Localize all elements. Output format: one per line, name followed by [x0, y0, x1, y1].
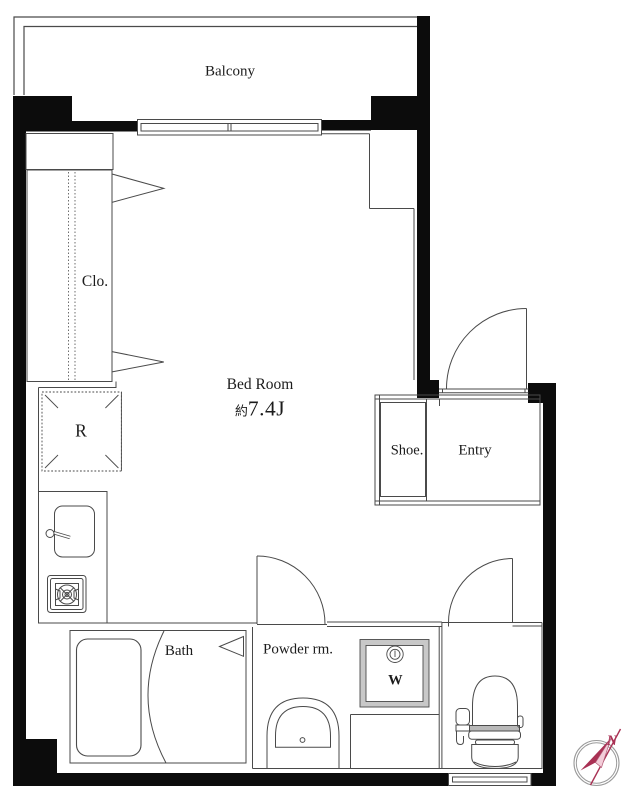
svg-text:N: N — [606, 733, 618, 749]
svg-text:W: W — [388, 673, 403, 689]
svg-text:Powder rm.: Powder rm. — [263, 642, 333, 658]
svg-text:Bed Room: Bed Room — [227, 376, 294, 393]
svg-text:Entry: Entry — [458, 443, 492, 459]
svg-text:Bath: Bath — [165, 643, 194, 659]
svg-text:Shoe.: Shoe. — [391, 443, 424, 459]
svg-text:Balcony: Balcony — [205, 64, 255, 80]
svg-text:R: R — [75, 421, 87, 441]
svg-text:Clo.: Clo. — [82, 273, 108, 290]
